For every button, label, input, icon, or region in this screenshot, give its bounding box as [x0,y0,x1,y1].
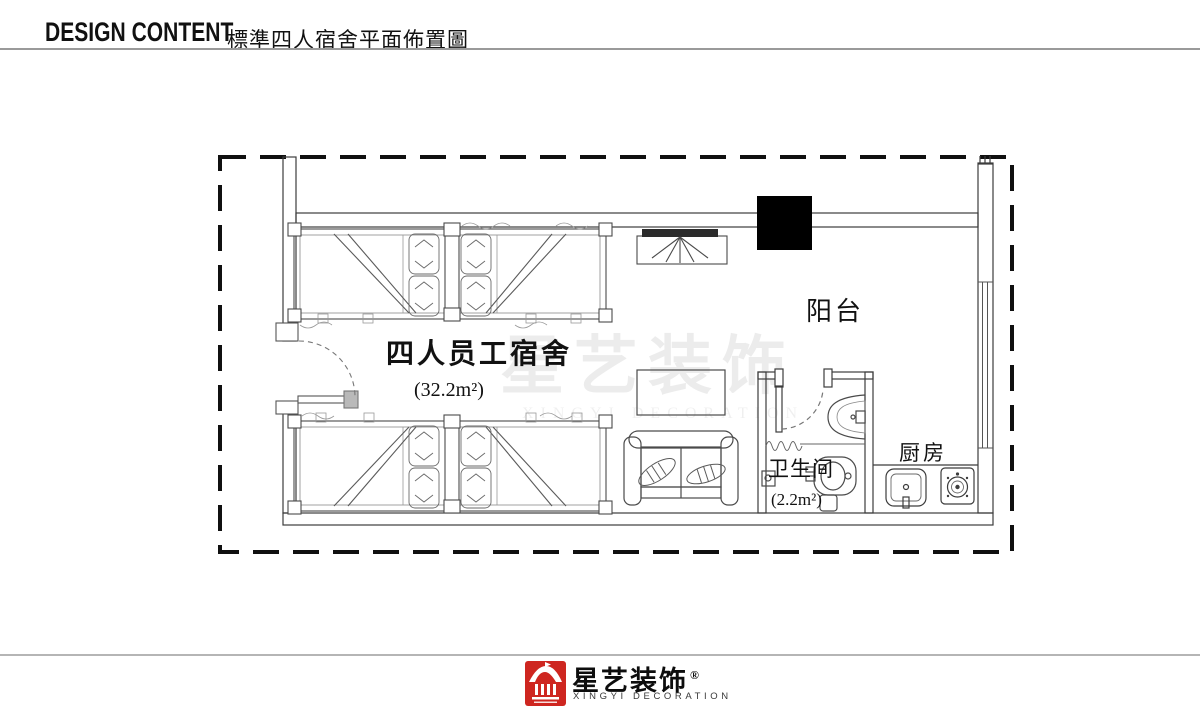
pillows-upper [409,234,491,316]
pillows-lower [409,426,491,508]
washbasin [828,395,865,439]
room-area-dorm: (32.2m²) [414,379,484,401]
door-frame-bottom [276,401,298,414]
floor-plan-drawing: 星艺装饰 XINGYI DECORATION [0,0,1200,714]
door-swing-arc [299,341,355,397]
bathroom-door-frame [824,369,832,387]
kitchen-sink [886,469,926,508]
bathroom-door-frame [775,369,783,387]
room-label-dorm: 四人员工宿舍 [386,337,572,370]
footer-divider [0,654,1200,656]
bathroom-wall-right [865,372,873,513]
wall-bottom [283,513,993,525]
tv-screen [642,229,718,237]
room-label-bathroom: 卫生间 [768,457,834,481]
bunk-bed-lower [288,413,612,514]
shower-curtain [766,442,865,451]
room-area-bathroom: (2.2m²) [771,490,822,509]
registered-trademark-mark: ® [690,668,701,682]
svg-text:XINGYI DECORATION: XINGYI DECORATION [522,405,804,422]
design-sheet: DESIGN CONTENT 標準四人宿舍平面佈置圖 星艺装饰 XINGYI D… [0,0,1200,714]
room-label-balcony: 阳台 [806,297,864,326]
entry-door [276,323,358,414]
bed-diagonals [334,234,566,313]
room-label-kitchen: 厨房 [899,441,947,465]
brand-logo [525,661,566,711]
bed-diagonals [334,427,566,506]
brand-subtitle: XINGYI DECORATION [573,691,732,702]
stove [941,468,974,504]
house-logo-icon [525,661,566,706]
structural-column [757,196,812,250]
wall-top [296,213,978,227]
tv-cabinet [637,229,727,264]
kitchen [873,465,978,508]
wall-right [978,163,993,513]
balcony-window [978,282,993,448]
sofa [624,431,738,505]
door-frame-top [276,323,298,341]
bunk-bed-upper [288,223,612,328]
